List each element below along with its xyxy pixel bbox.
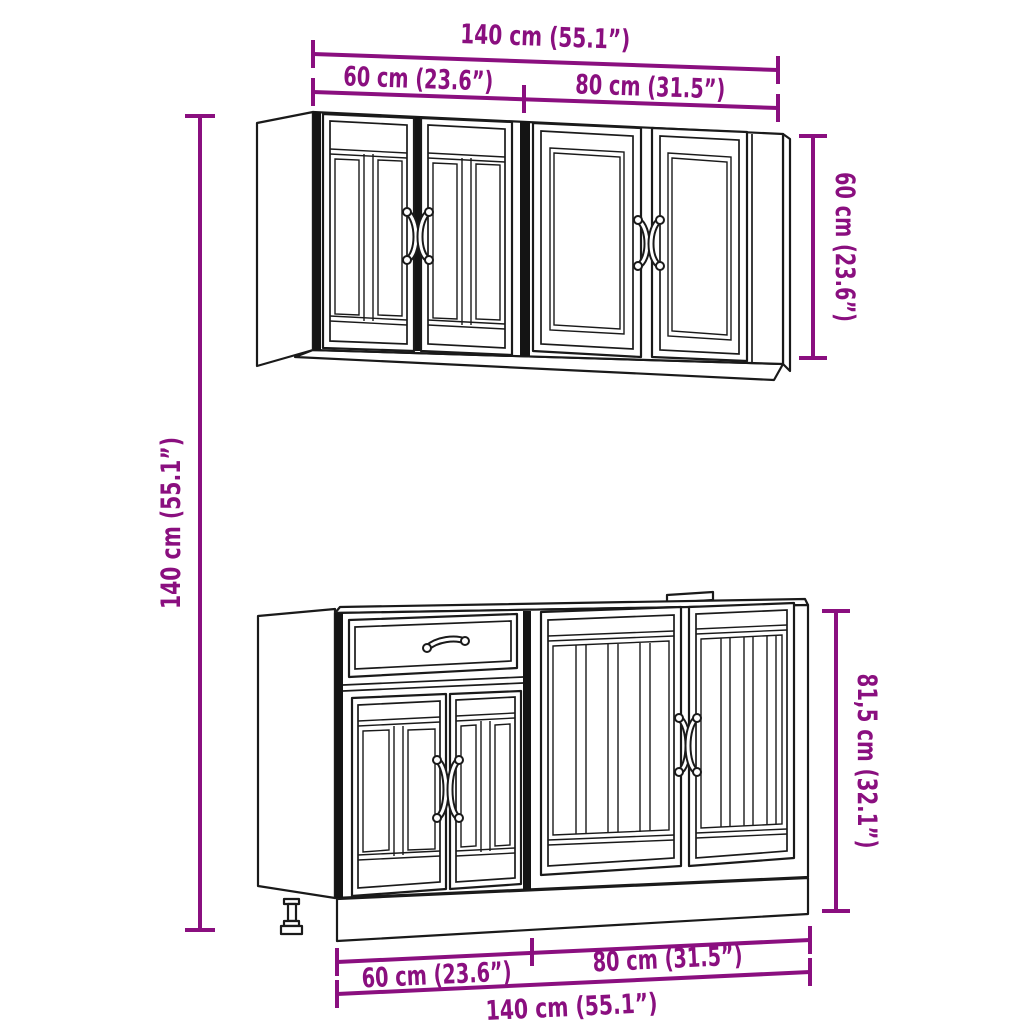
base-80-door-left xyxy=(541,607,681,875)
wall-divider-stile xyxy=(520,121,530,356)
base-divider-stile xyxy=(523,611,531,890)
dim-width-bottom-80-label: 80 cm (31.5”) xyxy=(592,940,743,978)
dim-width-top-60-label: 60 cm (23.6”) xyxy=(343,61,494,97)
diagram-canvas: 140 cm (55.1”) 60 cm (23.6”) 80 cm (31.5… xyxy=(0,0,1024,1024)
dim-width-top-total-label: 140 cm (55.1”) xyxy=(460,19,631,56)
dim-height-total-label: 140 cm (55.1”) xyxy=(156,437,187,609)
base-80-door-right xyxy=(689,603,794,866)
base-60-door-left xyxy=(352,694,446,896)
wall-60-door-left xyxy=(323,114,414,351)
dim-width-top-80-label: 80 cm (31.5”) xyxy=(575,69,726,105)
adjustable-foot xyxy=(281,899,302,934)
wall-left-stile xyxy=(313,112,321,350)
wall-unit-drawing xyxy=(257,112,790,380)
kitchen-cabinet-dimension-diagram: 140 cm (55.1”) 60 cm (23.6”) 80 cm (31.5… xyxy=(0,0,1024,1024)
base-unit-drawing xyxy=(258,592,808,941)
base-left-stile xyxy=(335,613,343,898)
dim-height-wall-cabinet-label: 60 cm (23.6”) xyxy=(829,172,860,322)
dim-height-base-cabinet-label: 81,5 cm (32.1”) xyxy=(851,674,882,849)
wall-80-door-right xyxy=(652,128,747,361)
dim-width-top-segments: 60 cm (23.6”) 80 cm (31.5”) xyxy=(313,61,778,122)
base-60-door-right xyxy=(450,691,521,889)
wall-unit-side-panel xyxy=(257,112,313,366)
dim-height-wall-cabinet: 60 cm (23.6”) xyxy=(799,136,860,358)
wall-60-door-right xyxy=(421,118,512,355)
dim-height-total: 140 cm (55.1”) xyxy=(156,116,215,930)
dim-height-base-cabinet: 81,5 cm (32.1”) xyxy=(822,611,882,911)
wall-80-door-left xyxy=(533,123,641,357)
dim-width-bottom-total-label: 140 cm (55.1”) xyxy=(485,988,658,1024)
base-side-panel xyxy=(258,609,335,898)
